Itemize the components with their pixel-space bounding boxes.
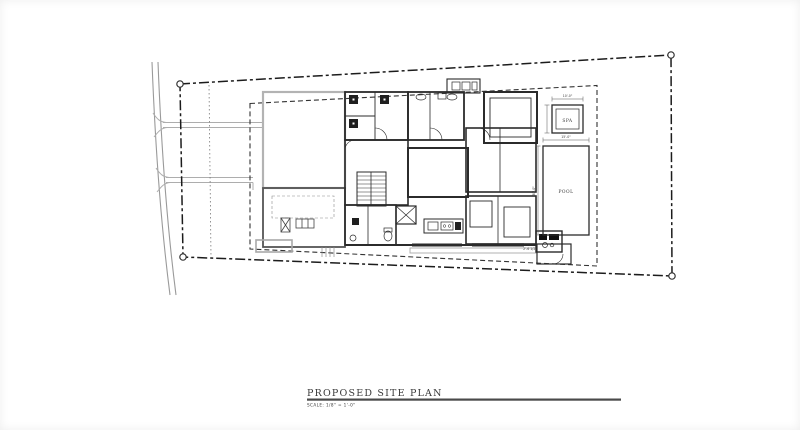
house-footprint [345, 79, 537, 246]
sink-icon [350, 235, 356, 241]
garage [263, 188, 345, 247]
rear-structure [537, 244, 571, 264]
rear-wall-windows [345, 244, 536, 247]
spa [545, 97, 584, 134]
staircase-icon [357, 172, 386, 206]
site-plan-drawing: 2'-6 1/2" SPA 10'-0" POOL 15'-0" 30'-0" [0, 0, 800, 430]
pool [536, 138, 590, 236]
title-block: PROPOSED SITE PLAN SCALE: 1/8" = 1'-0" [307, 388, 621, 408]
rooms-mid-right [466, 128, 536, 192]
dim-pool-width: 15'-0" [561, 135, 571, 139]
dim-patio-offset: 2'-6 1/2" [523, 247, 537, 251]
courtyard-deck-outline [263, 92, 345, 188]
drawing-title: PROPOSED SITE PLAN [307, 388, 443, 399]
room-top-right [484, 92, 537, 143]
living-room [408, 148, 468, 197]
spa-label: SPA [562, 119, 573, 124]
patio-step [410, 248, 536, 253]
entry-steps [322, 247, 334, 257]
kitchen-sink-icon [428, 222, 438, 230]
sink-icon [447, 94, 457, 100]
setback-line-dotted [209, 85, 211, 257]
equipment-shelf-icon [296, 219, 314, 228]
kitchen-island [424, 219, 463, 233]
elevator-icon [396, 206, 416, 224]
dim-spa-width: 10'-0" [563, 94, 573, 98]
skylight-icons [349, 95, 389, 128]
street-curb-lines [152, 62, 176, 295]
water-heater-icon [281, 218, 290, 232]
cooktop-icon [441, 222, 453, 230]
equipment-pad [447, 79, 480, 93]
scale-note: SCALE: 1/8" = 1'-0" [307, 403, 356, 408]
spa-dim-lines [545, 97, 584, 134]
skylight-icon [352, 218, 359, 225]
rooms-bottom-left [345, 205, 396, 245]
site-plan-sheet: 2'-6 1/2" SPA 10'-0" POOL 15'-0" 30'-0" [0, 0, 800, 430]
driveway-walkway [153, 113, 263, 192]
pool-label: POOL [558, 190, 573, 195]
entry-porch [256, 240, 334, 257]
rooms-top-center [408, 92, 464, 140]
rooms-bottom-right [466, 196, 536, 244]
toilet-icon [384, 228, 392, 241]
dim-pool-length: 30'-0" [532, 186, 536, 196]
title-rule [307, 399, 621, 401]
outdoor-kitchen [536, 231, 562, 252]
